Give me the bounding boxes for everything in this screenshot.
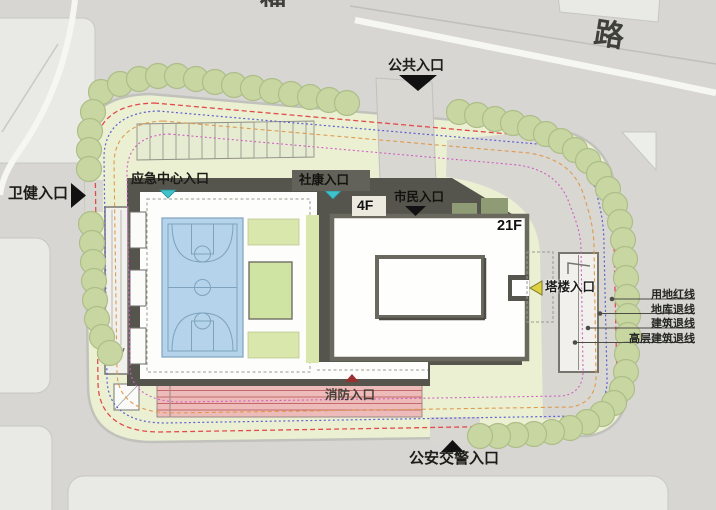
road-name-label: 路 bbox=[592, 18, 627, 54]
tree-icon bbox=[335, 91, 360, 116]
community-health-entrance-label: 社康入口 bbox=[299, 174, 349, 187]
podium-skylights bbox=[130, 212, 146, 364]
site-plan: 福 路 卫健入口 公共入口 应急中心入口 社康入口 市民入口 塔楼入口 消防入口… bbox=[0, 0, 716, 510]
parcel-bottom bbox=[68, 476, 668, 510]
public-entrance-label: 公共入口 bbox=[388, 58, 444, 73]
basketball-court bbox=[162, 218, 243, 357]
fire-entrance-label: 消防入口 bbox=[325, 389, 375, 402]
west-crosswalk bbox=[85, 180, 103, 212]
tower-core bbox=[377, 257, 483, 317]
site-plan-drawing bbox=[0, 0, 716, 510]
police-entrance-label: 公安交警入口 bbox=[409, 451, 499, 467]
emergency-entrance-label: 应急中心入口 bbox=[131, 172, 209, 186]
public-entrance-path bbox=[376, 78, 436, 182]
tree-icon bbox=[468, 424, 493, 449]
legend-highrise-setback: 高层建筑退线 bbox=[585, 330, 695, 346]
lawns bbox=[248, 215, 319, 363]
health-entrance-label: 卫健入口 bbox=[8, 186, 68, 202]
tree-icon bbox=[98, 341, 123, 366]
tower-floor-label: 21F bbox=[497, 219, 522, 234]
podium-floor-label: 4F bbox=[357, 198, 373, 213]
surface-parking bbox=[137, 121, 314, 160]
citizen-entrance-label: 市民入口 bbox=[394, 191, 444, 204]
parcel-bottom-left bbox=[0, 426, 52, 510]
roof-planter bbox=[481, 198, 508, 214]
parcel-left bbox=[0, 238, 50, 393]
road-name-partial: 福 bbox=[258, 0, 298, 7]
tree-icon bbox=[77, 157, 102, 182]
